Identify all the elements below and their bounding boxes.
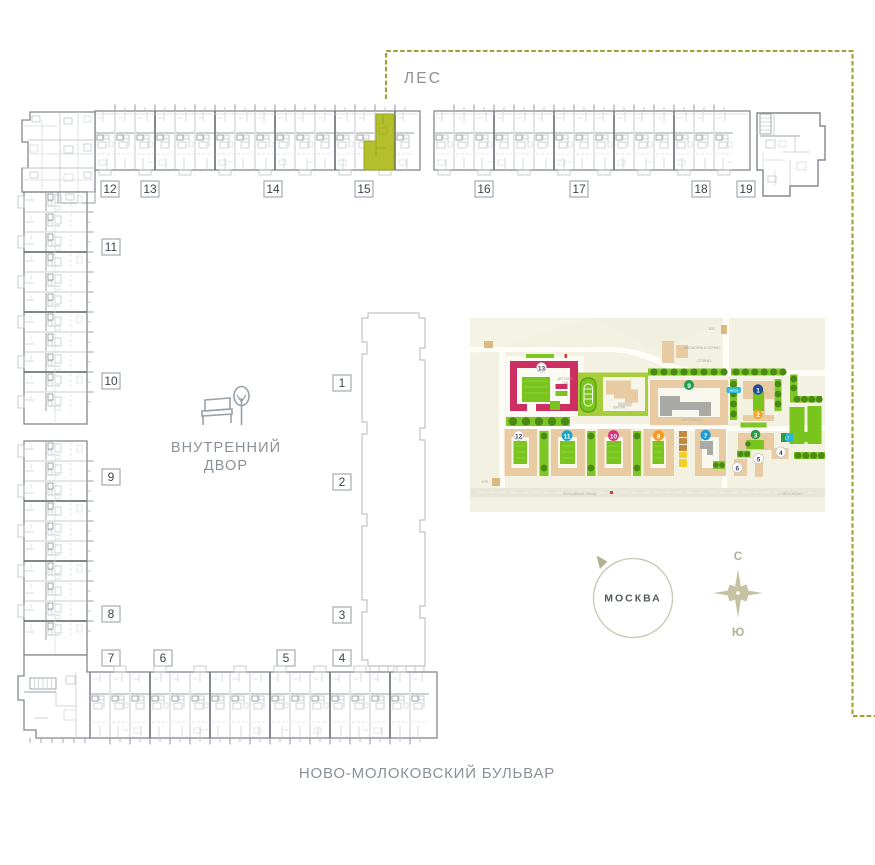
svg-text:3: 3 [754, 432, 758, 439]
svg-text:АЗС: АЗС [709, 327, 716, 331]
svg-text:КОЛЬЦЕВАЯ УЛИЦА: КОЛЬЦЕВАЯ УЛИЦА [563, 492, 597, 496]
svg-text:12: 12 [515, 433, 523, 440]
svg-text:МОСКВА: МОСКВА [604, 593, 662, 605]
svg-text:5: 5 [283, 651, 290, 665]
svg-text:4: 4 [339, 651, 346, 665]
svg-text:17: 17 [785, 435, 790, 440]
svg-text:ДВОР: ДВОР [204, 458, 248, 474]
svg-text:3: 3 [339, 608, 346, 622]
svg-text:КПП: КПП [482, 480, 489, 484]
svg-text:2: 2 [756, 412, 760, 419]
svg-text:13: 13 [538, 365, 546, 372]
svg-text:АВТОМОЙКА И СЕРВИС: АВТОМОЙКА И СЕРВИС [683, 346, 721, 350]
svg-text:4: 4 [779, 450, 783, 457]
svg-text:6: 6 [160, 651, 167, 665]
svg-text:ШКОЛА: ШКОЛА [613, 406, 626, 410]
svg-text:ЛЕС: ЛЕС [404, 70, 442, 87]
svg-text:АВТОЗАВОДА: АВТОЗАВОДА [681, 418, 703, 422]
svg-text:Ю: Ю [732, 625, 744, 639]
svg-text:С: С [734, 549, 743, 563]
svg-text:НОВО-МОЛОКОВСКИЙ БУЛЬВАР: НОВО-МОЛОКОВСКИЙ БУЛЬВАР [299, 764, 555, 782]
svg-text:6: 6 [735, 465, 739, 472]
svg-text:10: 10 [610, 433, 618, 440]
svg-text:С. МОЛОКОВО: С. МОЛОКОВО [778, 492, 802, 496]
svg-text:9: 9 [108, 470, 115, 484]
svg-text:7: 7 [108, 651, 115, 665]
svg-text:10: 10 [104, 374, 118, 388]
svg-text:14: 14 [266, 182, 280, 196]
svg-text:СТОЯНКА: СТОЯНКА [697, 359, 713, 363]
svg-text:1: 1 [756, 387, 760, 394]
svg-text:19: 19 [739, 182, 753, 196]
svg-text:метро: метро [729, 388, 738, 392]
svg-text:15: 15 [357, 182, 371, 196]
svg-text:7: 7 [704, 433, 708, 440]
svg-text:5: 5 [757, 456, 761, 463]
svg-text:ВНУТРЕННИЙ: ВНУТРЕННИЙ [171, 438, 281, 456]
svg-text:12: 12 [103, 182, 117, 196]
svg-text:САД: САД [562, 381, 569, 385]
svg-text:16: 16 [477, 182, 491, 196]
svg-text:1: 1 [339, 376, 346, 390]
svg-text:17: 17 [572, 182, 586, 196]
svg-text:18: 18 [694, 182, 708, 196]
svg-text:9: 9 [687, 383, 691, 390]
svg-text:11: 11 [105, 240, 118, 254]
svg-text:8: 8 [657, 433, 661, 440]
svg-text:11: 11 [564, 433, 571, 440]
svg-text:2: 2 [339, 475, 346, 489]
svg-text:13: 13 [143, 182, 157, 196]
svg-text:8: 8 [108, 607, 115, 621]
